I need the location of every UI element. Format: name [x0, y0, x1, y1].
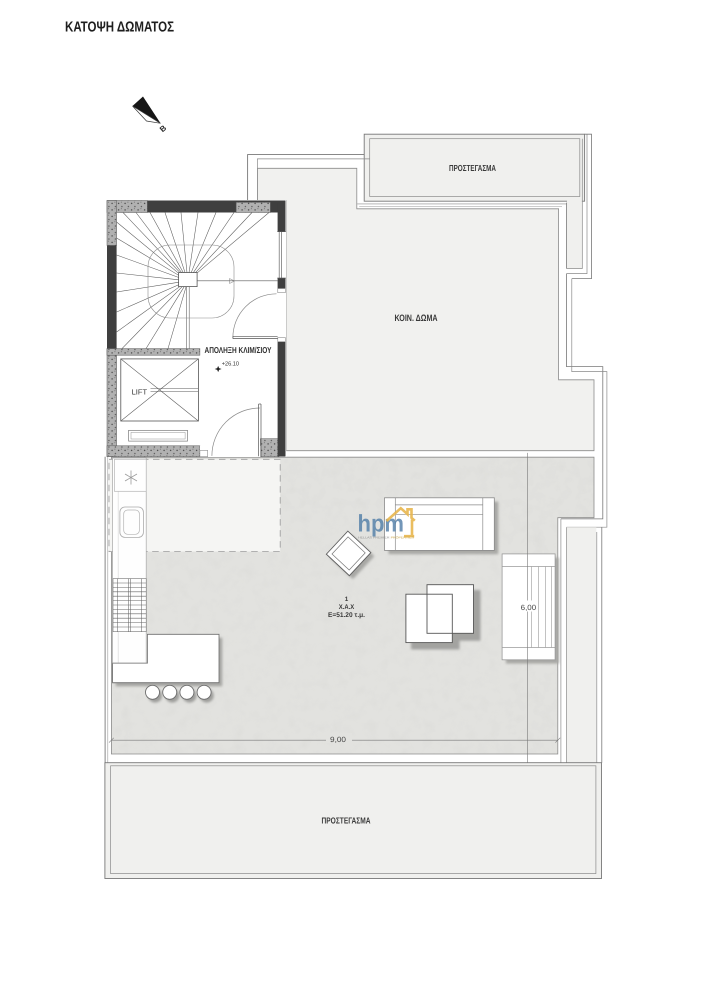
svg-text:ΑΠΟΛΗΞΗ ΚΛΙΜ/ΣΙΟΥ: ΑΠΟΛΗΞΗ ΚΛΙΜ/ΣΙΟΥ [205, 345, 272, 355]
svg-text:ΚΑΤΟΨΗ ΔΩΜΑΤΟΣ: ΚΑΤΟΨΗ ΔΩΜΑΤΟΣ [65, 20, 174, 36]
svg-text:6,00: 6,00 [521, 603, 537, 612]
svg-text:ΚΟΙΝ. ΔΩΜΑ: ΚΟΙΝ. ΔΩΜΑ [395, 313, 438, 323]
svg-text:Χ.Α.Χ: Χ.Α.Χ [339, 604, 355, 611]
svg-text:9,00: 9,00 [330, 735, 346, 744]
svg-text:Ε=51.20 τ.μ.: Ε=51.20 τ.μ. [328, 612, 365, 619]
svg-text:+26.10: +26.10 [222, 361, 240, 368]
svg-text:LIFT: LIFT [132, 387, 148, 396]
svg-text:ΠΡΟΣΤΕΓΑΣΜΑ: ΠΡΟΣΤΕΓΑΣΜΑ [322, 815, 371, 825]
svg-text:hpm: hpm [358, 511, 405, 538]
svg-text:1: 1 [345, 596, 349, 603]
svg-text:B: B [158, 123, 168, 134]
svg-text:ΠΡΟΣΤΕΓΑΣΜΑ: ΠΡΟΣΤΕΓΑΣΜΑ [449, 163, 496, 173]
svg-text:HELLAS PREMIER PROPERTIES: HELLAS PREMIER PROPERTIES [358, 536, 414, 540]
